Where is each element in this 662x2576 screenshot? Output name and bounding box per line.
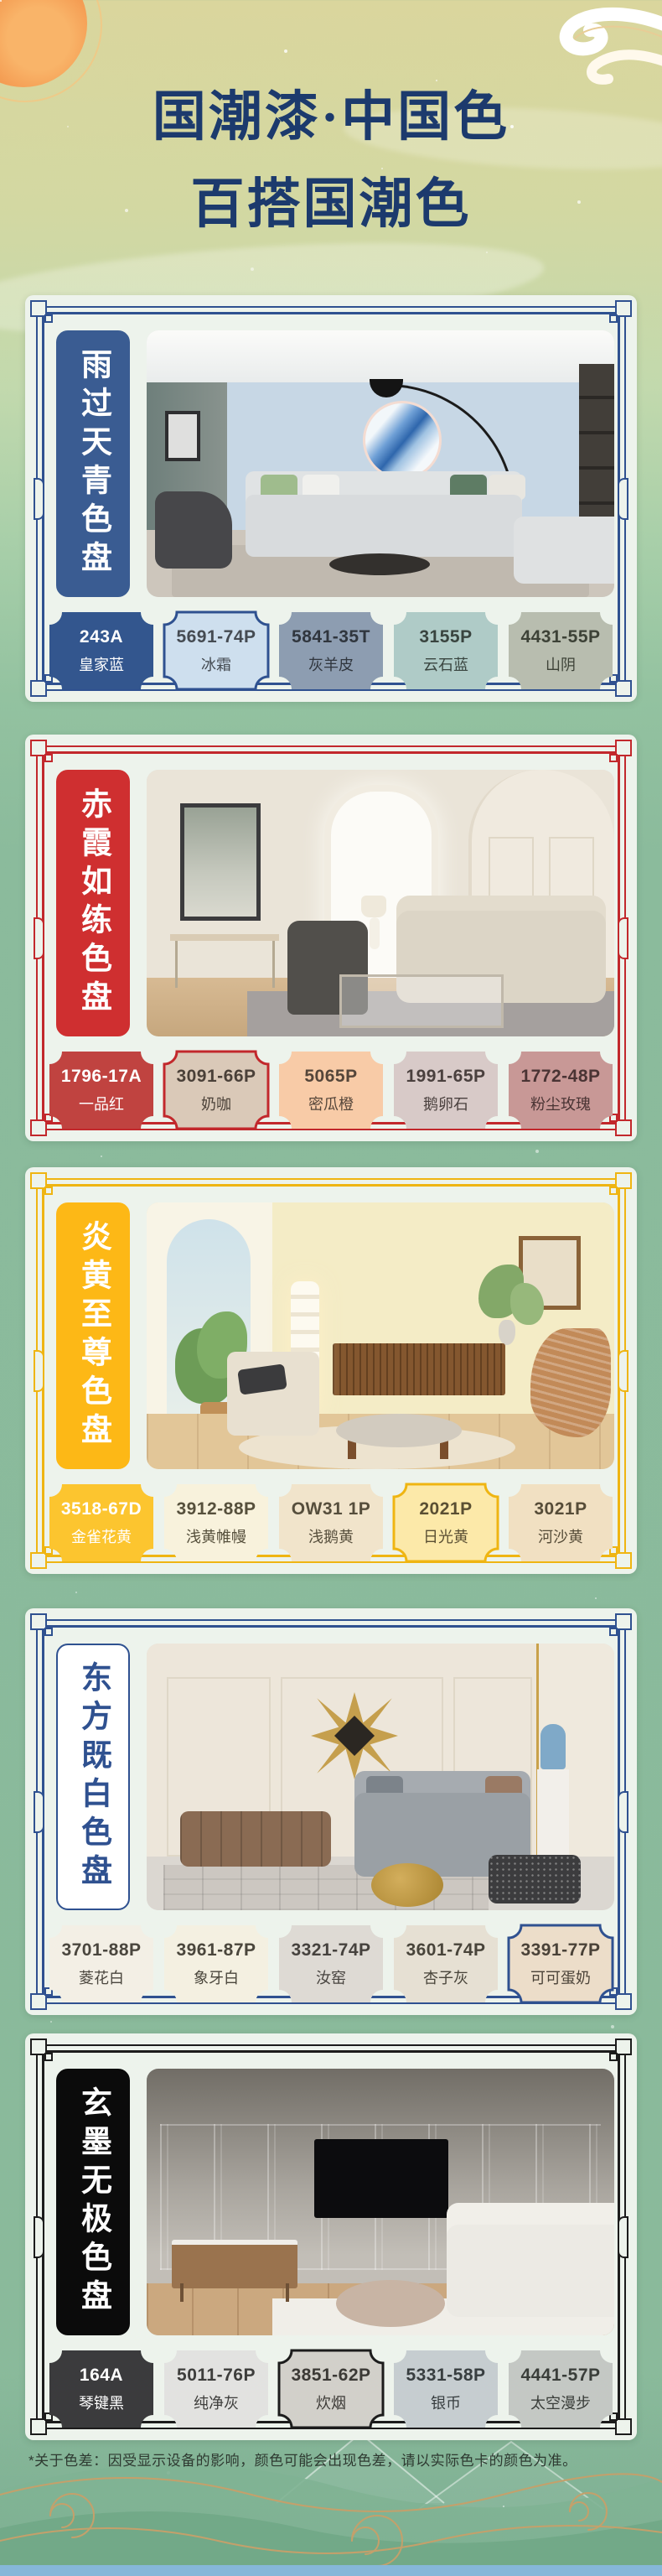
wall-tv xyxy=(314,2139,448,2218)
room-photo-cream-classic xyxy=(147,770,614,1036)
frame-side-ornament xyxy=(618,1791,628,1833)
swatch-code: 5065P xyxy=(304,1067,357,1087)
room-photo-gray-tv-room xyxy=(147,2069,614,2335)
swatch-plaque-shape xyxy=(277,1924,385,2004)
gold-coffee-table xyxy=(371,1863,443,1907)
swatch-name: 灰羊皮 xyxy=(308,653,354,675)
swatch-name: 冰霜 xyxy=(201,653,231,675)
framed-art xyxy=(165,411,200,461)
swatch-row: 243A皇家蓝 5691-74P冰霜 5841-35T灰羊皮 3155P云石蓝 … xyxy=(48,610,614,691)
palette-card-black: 玄墨无极色盘 164A琴键黑 5011-76P纯净灰 3851-62P炊烟 53… xyxy=(25,2033,637,2440)
swatch-name: 山阴 xyxy=(546,653,576,675)
swatch-code: 3391-77P xyxy=(520,1940,600,1961)
swatch-name: 浅黄帷幔 xyxy=(186,1525,246,1547)
swatch-plaque-shape xyxy=(163,610,270,691)
swatch-name: 河沙黄 xyxy=(538,1525,583,1547)
door-panel xyxy=(489,837,534,899)
color-swatch: 2021P日光黄 xyxy=(392,1483,499,1563)
frame-corner-icon xyxy=(30,740,47,756)
round-coffee-table xyxy=(336,1414,462,1447)
color-swatch: 5331-58P银币 xyxy=(392,2349,499,2429)
swatch-code: 5691-74P xyxy=(176,627,256,647)
frame-corner-icon xyxy=(615,300,632,317)
frame-corner-icon xyxy=(615,1119,632,1136)
swatch-plaque-shape xyxy=(392,1050,499,1130)
swatch-code: 2021P xyxy=(419,1499,472,1519)
swatch-plaque-shape xyxy=(277,610,385,691)
color-swatch: 3701-88P菱花白 xyxy=(48,1924,155,2004)
swatch-plaque-shape xyxy=(163,1924,270,2004)
frame-side-ornament xyxy=(618,1350,628,1392)
palette-banner: 雨过天青色盘 xyxy=(56,330,130,597)
swatch-name: 皇家蓝 xyxy=(79,653,124,675)
frame-corner-icon xyxy=(30,2418,47,2435)
color-swatch: 4431-55P山阴 xyxy=(507,610,614,691)
room-photo-blue-livingroom xyxy=(147,330,614,597)
media-console xyxy=(172,2240,297,2288)
stars-decor xyxy=(0,0,2,2)
blue-sculpture xyxy=(540,1724,566,1769)
swatch-name: 象牙白 xyxy=(194,1966,239,1988)
color-swatch: 3518-67D金雀花黄 xyxy=(48,1483,155,1563)
swatch-name: 杏子灰 xyxy=(423,1966,468,1988)
color-swatch: 1991-65P鹅卵石 xyxy=(392,1050,499,1130)
swatch-name: 一品红 xyxy=(79,1093,124,1114)
swatch-code: 5011-76P xyxy=(177,2366,256,2386)
swatch-name: 琴键黑 xyxy=(79,2392,124,2413)
frame-corner-icon xyxy=(30,1993,47,2010)
frame-corner-icon xyxy=(30,680,47,697)
swatch-row: 1796-17A一品红 3091-66P奶咖 5065P密瓜橙 1991-65P… xyxy=(48,1050,614,1130)
swatch-plaque-shape xyxy=(163,1050,270,1130)
swatch-code: 3155P xyxy=(419,627,472,647)
color-swatch: 1796-17A一品红 xyxy=(48,1050,155,1130)
color-swatch: 5011-76P纯净灰 xyxy=(163,2349,270,2429)
swatch-name: 菱花白 xyxy=(79,1966,124,1988)
swatch-name: 奶咖 xyxy=(201,1093,231,1114)
frame-corner-icon xyxy=(615,1552,632,1569)
color-swatch: 5065P密瓜橙 xyxy=(277,1050,385,1130)
swatch-plaque-shape xyxy=(507,1050,614,1130)
swatch-plaque-shape xyxy=(507,1483,614,1563)
swatch-plaque-shape xyxy=(507,1924,614,2004)
vase xyxy=(499,1320,515,1345)
frame-side-ornament xyxy=(34,2216,44,2258)
lamp-base xyxy=(370,917,380,949)
glass-coffee-table xyxy=(339,974,504,1028)
color-swatch: 164A琴键黑 xyxy=(48,2349,155,2429)
palette-name: 赤霞如练色盘 xyxy=(78,787,109,1019)
color-swatch: 1772-48P粉尘玫瑰 xyxy=(507,1050,614,1130)
frame-corner-icon xyxy=(615,2038,632,2055)
swatch-plaque-shape xyxy=(163,2349,270,2429)
frame-corner-icon xyxy=(30,1552,47,1569)
swatch-row: 164A琴键黑 5011-76P纯净灰 3851-62P炊烟 5331-58P银… xyxy=(48,2349,614,2429)
swatch-code: 1991-65P xyxy=(406,1067,485,1087)
swatch-code: 3321-74P xyxy=(291,1940,370,1961)
palette-banner: 赤霞如练色盘 xyxy=(56,770,130,1036)
swatch-code: 3912-88P xyxy=(176,1499,256,1519)
frame-corner-icon xyxy=(30,300,47,317)
swatch-plaque-shape xyxy=(507,610,614,691)
swatch-name: 可可蛋奶 xyxy=(530,1966,591,1988)
swatch-plaque-shape xyxy=(507,2349,614,2429)
swatch-name: 粉尘玫瑰 xyxy=(530,1093,591,1114)
swatch-code: OW31 1P xyxy=(292,1499,371,1519)
swatch-plaque-shape xyxy=(277,2349,385,2429)
color-swatch: 3601-74P杏子灰 xyxy=(392,1924,499,2004)
table-leg xyxy=(175,941,178,988)
swatch-row: 3701-88P菱花白 3961-87P象牙白 3321-74P汝窑 3601-… xyxy=(48,1924,614,2004)
palette-card-white: 东方既白色盘 3701-88P菱花白 3961-87P象牙白 3321-74P汝… xyxy=(25,1608,637,2015)
frame-corner-icon xyxy=(615,1613,632,1630)
pedestal xyxy=(537,1769,569,1863)
swatch-code: 5841-35T xyxy=(292,627,370,647)
color-swatch: 3912-88P浅黄帷幔 xyxy=(163,1483,270,1563)
ceiling xyxy=(147,330,614,382)
swatch-code: 1772-48P xyxy=(520,1067,600,1087)
palette-card-red: 赤霞如练色盘 1796-17A一品红 3091-66P奶咖 5065P密瓜橙 1… xyxy=(25,735,637,1141)
color-swatch: 3391-77P可可蛋奶 xyxy=(507,1924,614,2004)
palette-name: 东方既白色盘 xyxy=(78,1661,109,1893)
swatch-code: 4431-55P xyxy=(520,627,600,647)
palette-name: 玄墨无极色盘 xyxy=(78,2086,109,2318)
swatch-code: 3021P xyxy=(534,1499,587,1519)
swatch-plaque-shape xyxy=(392,1483,499,1563)
frame-side-ornament xyxy=(34,1350,44,1392)
swatch-plaque-shape xyxy=(48,2349,155,2429)
houndstooth-pouf xyxy=(489,1855,581,1903)
swatch-plaque-shape xyxy=(48,1050,155,1130)
swatch-code: 3091-66P xyxy=(176,1067,256,1087)
swatch-code: 3518-67D xyxy=(61,1499,142,1519)
frame-corner-icon xyxy=(30,1119,47,1136)
side-sofa xyxy=(514,517,614,584)
palette-name: 炎黄至尊色盘 xyxy=(78,1220,109,1452)
swatch-code: 3601-74P xyxy=(406,1940,485,1961)
color-swatch: 5691-74P冰霜 xyxy=(163,610,270,691)
swatch-plaque-shape xyxy=(277,1483,385,1563)
room-photo-white-gold-livingroom xyxy=(147,1644,614,1910)
color-swatch: 4441-57P太空漫步 xyxy=(507,2349,614,2429)
color-swatch: 3155P云石蓝 xyxy=(392,610,499,691)
frame-corner-icon xyxy=(30,1613,47,1630)
palette-card-yellow: 炎黄至尊色盘 3518-67D金雀花黄 3912-88P浅黄帷幔 OW31 1P… xyxy=(25,1167,637,1574)
swatch-code: 164A xyxy=(80,2366,123,2386)
room-photo-yellow-livingroom xyxy=(147,1202,614,1469)
frame-corner-icon xyxy=(615,2418,632,2435)
frame-side-ornament xyxy=(618,478,628,520)
leather-bench xyxy=(180,1811,331,1867)
frame-corner-icon xyxy=(615,1993,632,2010)
bottom-blue-strip xyxy=(0,2565,662,2576)
swatch-code: 4441-57P xyxy=(520,2366,600,2386)
lounge-chair xyxy=(155,491,232,569)
swatch-row: 3518-67D金雀花黄 3912-88P浅黄帷幔 OW31 1P浅鹅黄 202… xyxy=(48,1483,614,1563)
swatch-name: 鹅卵石 xyxy=(423,1093,468,1114)
color-swatch: 3851-62P炊烟 xyxy=(277,2349,385,2429)
color-swatch: 3091-66P奶咖 xyxy=(163,1050,270,1130)
swatch-name: 汝窑 xyxy=(316,1966,346,1988)
swatch-plaque-shape xyxy=(163,1483,270,1563)
color-swatch: 3021P河沙黄 xyxy=(507,1483,614,1563)
palette-banner: 炎黄至尊色盘 xyxy=(56,1202,130,1469)
frame-side-ornament xyxy=(34,917,44,959)
console-leg xyxy=(180,2283,184,2302)
swatch-plaque-shape xyxy=(48,610,155,691)
swatch-name: 银币 xyxy=(431,2392,461,2413)
swatch-name: 密瓜橙 xyxy=(308,1093,354,1114)
table-leg xyxy=(272,941,275,988)
frame-side-ornament xyxy=(34,1791,44,1833)
frame-side-ornament xyxy=(34,478,44,520)
swatch-name: 炊烟 xyxy=(316,2392,346,2413)
palette-banner: 玄墨无极色盘 xyxy=(56,2069,130,2335)
color-swatch: 5841-35T灰羊皮 xyxy=(277,610,385,691)
swatch-code: 243A xyxy=(80,627,123,647)
console-table xyxy=(170,934,279,941)
swatch-code: 1796-17A xyxy=(61,1067,142,1087)
wood-console xyxy=(333,1343,505,1395)
color-disclaimer-note: *关于色差：因受显示设备的影响，颜色可能会出现色差，请以实际色卡的颜色为准。 xyxy=(28,2449,577,2470)
bookshelf xyxy=(579,364,614,537)
swatch-name: 浅鹅黄 xyxy=(308,1525,354,1547)
console-leg xyxy=(286,2283,289,2302)
swatch-plaque-shape xyxy=(48,1924,155,2004)
white-sofa xyxy=(447,2225,614,2317)
swatch-plaque-shape xyxy=(392,610,499,691)
color-swatch: 3321-74P汝窑 xyxy=(277,1924,385,2004)
table-lamp xyxy=(361,896,386,917)
color-swatch: OW31 1P浅鹅黄 xyxy=(277,1483,385,1563)
frame-corner-icon xyxy=(615,740,632,756)
sculpted-rocking-chair xyxy=(530,1328,611,1437)
swatch-name: 纯净灰 xyxy=(194,2392,239,2413)
sofa xyxy=(246,495,522,557)
swatch-plaque-shape xyxy=(277,1050,385,1130)
poster-title-line1: 国潮漆·中国色 xyxy=(0,74,662,151)
swatch-code: 3701-88P xyxy=(61,1940,141,1961)
swatch-name: 太空漫步 xyxy=(530,2392,591,2413)
poster-title-line2: 百搭国潮色 xyxy=(0,161,662,238)
swatch-name: 金雀花黄 xyxy=(71,1525,132,1547)
color-swatch: 243A皇家蓝 xyxy=(48,610,155,691)
swatch-plaque-shape xyxy=(392,1924,499,2004)
coffee-table xyxy=(329,553,430,575)
frame-side-ornament xyxy=(618,917,628,959)
palette-card-rain-blue: 雨过天青色盘 243A皇家蓝 5691-74P冰霜 5841-35T灰羊皮 31… xyxy=(25,295,637,702)
frame-corner-icon xyxy=(615,680,632,697)
swatch-code: 5331-58P xyxy=(406,2366,485,2386)
swatch-name: 云石蓝 xyxy=(423,653,468,675)
swatch-plaque-shape xyxy=(48,1483,155,1563)
color-swatch: 3961-87P象牙白 xyxy=(163,1924,270,2004)
framed-painting xyxy=(180,803,261,921)
swatch-code: 3851-62P xyxy=(291,2366,370,2386)
swatch-name: 日光黄 xyxy=(423,1525,468,1547)
swatch-plaque-shape xyxy=(392,2349,499,2429)
palette-name: 雨过天青色盘 xyxy=(78,348,109,579)
door-panel xyxy=(549,837,594,899)
frame-side-ornament xyxy=(618,2216,628,2258)
round-ottoman xyxy=(336,2280,445,2327)
frame-corner-icon xyxy=(30,1172,47,1189)
palette-banner: 东方既白色盘 xyxy=(56,1644,130,1910)
frame-corner-icon xyxy=(30,2038,47,2055)
swatch-code: 3961-87P xyxy=(176,1940,256,1961)
frame-corner-icon xyxy=(615,1172,632,1189)
